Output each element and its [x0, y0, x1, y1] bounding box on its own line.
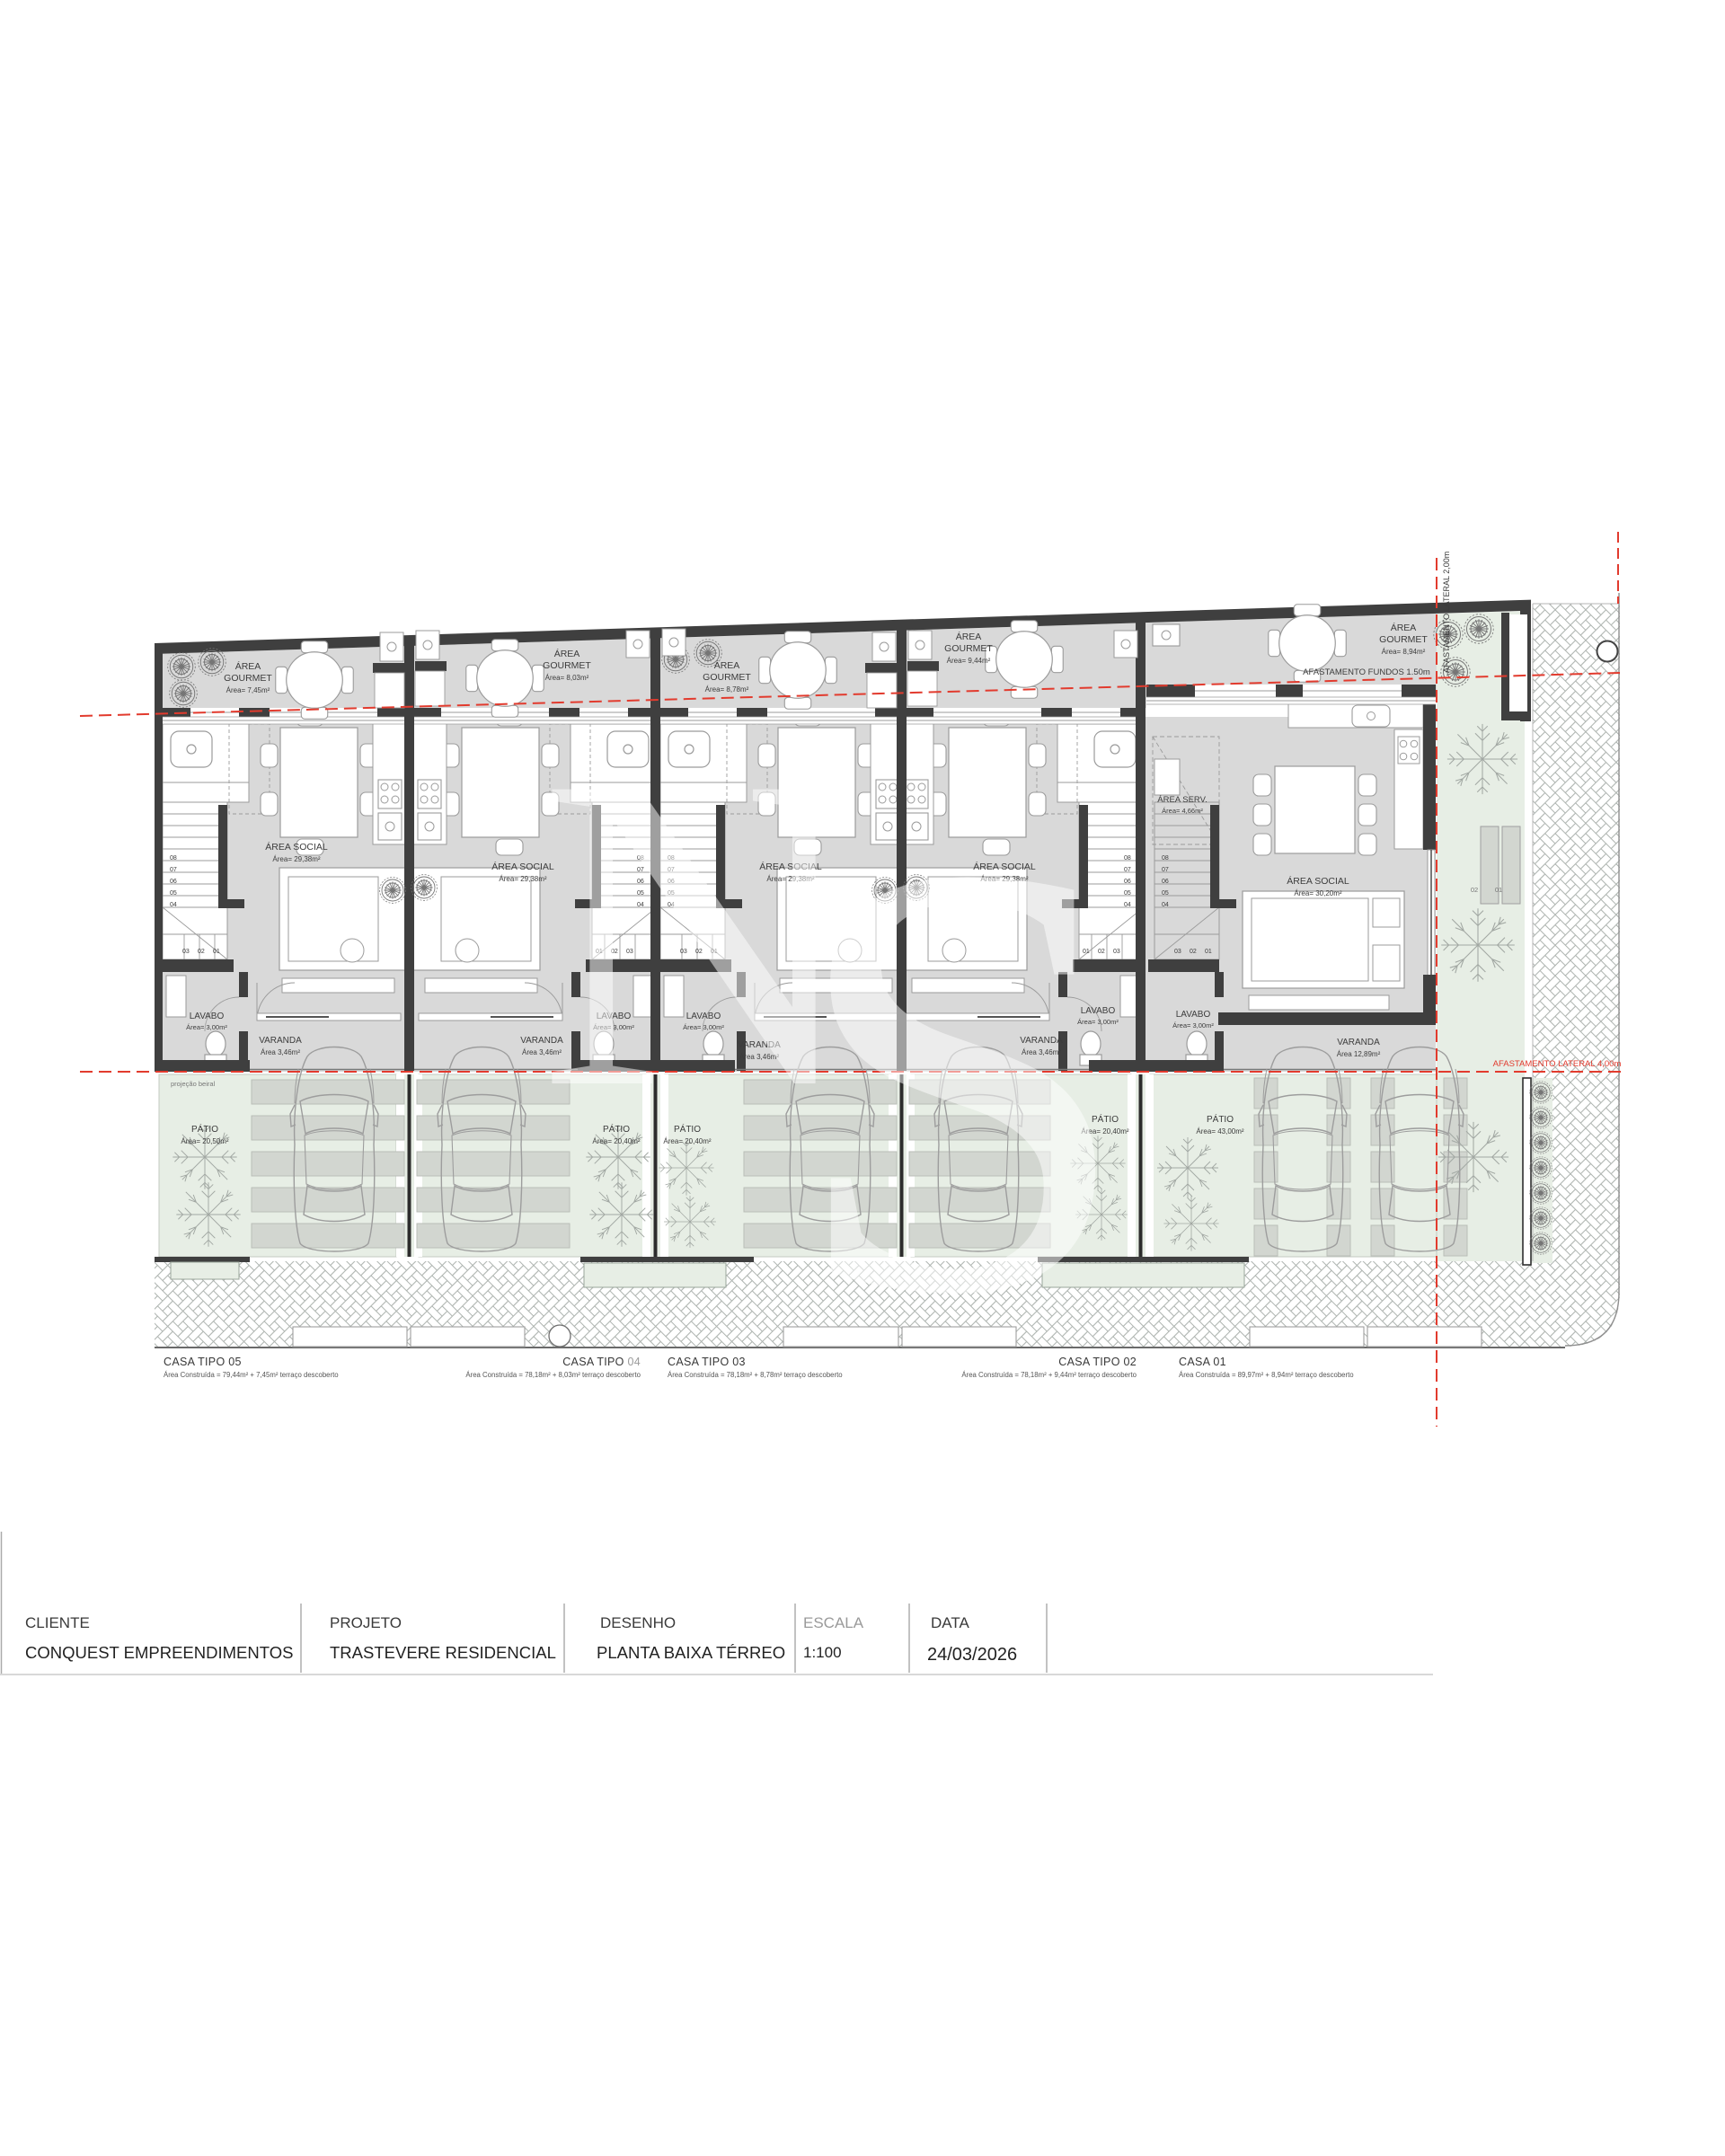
svg-text:04: 04	[170, 902, 177, 908]
svg-text:GOURMET: GOURMET	[224, 673, 272, 684]
svg-text:Área= 8,03m²: Área= 8,03m²	[545, 674, 589, 682]
svg-text:ÁREA SOCIAL: ÁREA SOCIAL	[1287, 875, 1349, 887]
svg-text:CASA TIPO 03: CASA TIPO 03	[668, 1356, 746, 1368]
svg-text:CASA TIPO 05: CASA TIPO 05	[164, 1356, 242, 1368]
svg-text:AFASTAMENTO LATERAL 2,00m: AFASTAMENTO LATERAL 2,00m	[1442, 552, 1451, 673]
svg-text:TRASTEVERE RESIDENCIAL: TRASTEVERE RESIDENCIAL	[330, 1643, 556, 1662]
svg-text:05: 05	[170, 890, 177, 897]
svg-text:projeção beiral: projeção beiral	[171, 1080, 216, 1088]
svg-text:Área 3,46m²: Área 3,46m²	[261, 1048, 300, 1056]
svg-text:Área= 8,94m²: Área= 8,94m²	[1382, 648, 1426, 656]
svg-text:02: 02	[198, 949, 205, 955]
svg-text:DESENHO: DESENHO	[600, 1614, 676, 1631]
svg-text:GOURMET: GOURMET	[703, 672, 751, 683]
svg-text:ÁREA: ÁREA	[714, 659, 740, 671]
svg-text:02: 02	[1471, 886, 1478, 894]
svg-text:06: 06	[170, 879, 177, 885]
svg-text:Área= 30,20m²: Área= 30,20m²	[1294, 889, 1341, 897]
svg-text:PROJETO: PROJETO	[330, 1614, 402, 1631]
svg-text:02: 02	[1190, 949, 1197, 955]
svg-text:Área= 43,00m²: Área= 43,00m²	[1196, 1127, 1243, 1135]
svg-text:08: 08	[1162, 855, 1169, 862]
svg-text:VARANDA: VARANDA	[1337, 1038, 1380, 1047]
svg-text:AFASTAMENTO FUNDOS 1.50m: AFASTAMENTO FUNDOS 1.50m	[1303, 667, 1430, 677]
svg-text:Área= 9,44m²: Área= 9,44m²	[947, 657, 991, 665]
svg-text:Área= 29,38m²: Área= 29,38m²	[272, 855, 320, 863]
svg-text:06: 06	[1162, 879, 1169, 885]
svg-text:ESCALA: ESCALA	[803, 1614, 864, 1631]
svg-text:ÁREA: ÁREA	[1391, 622, 1417, 633]
svg-text:PÁTIO: PÁTIO	[1207, 1113, 1234, 1125]
svg-text:07: 07	[170, 867, 177, 873]
svg-text:Área= 3,00m²: Área= 3,00m²	[1172, 1021, 1214, 1029]
svg-text:ÁREA: ÁREA	[956, 631, 982, 642]
svg-text:LAVABO: LAVABO	[1176, 1010, 1211, 1020]
svg-text:AFASTAMENTO LATERAL 4,00m: AFASTAMENTO LATERAL 4,00m	[1493, 1059, 1622, 1069]
svg-text:CONQUEST EMPREENDIMENTOS: CONQUEST EMPREENDIMENTOS	[25, 1643, 293, 1662]
svg-text:Área 12,89m²: Área 12,89m²	[1337, 1050, 1381, 1058]
svg-text:Área= 3,00m²: Área= 3,00m²	[186, 1023, 227, 1031]
svg-text:CLIENTE: CLIENTE	[25, 1614, 90, 1631]
svg-text:07: 07	[1162, 867, 1169, 873]
svg-text:01: 01	[213, 949, 220, 955]
svg-text:04: 04	[1162, 902, 1169, 908]
svg-text:Área Construída = 78,18m² + 8,: Área Construída = 78,18m² + 8,03m² terra…	[465, 1371, 641, 1379]
svg-text:ÁREA SERV.: ÁREA SERV.	[1157, 795, 1207, 805]
svg-text:ÁREA SOCIAL: ÁREA SOCIAL	[265, 841, 328, 853]
svg-text:S: S	[789, 736, 1134, 1422]
svg-text:Área Construída = 89,97m² + 8,: Área Construída = 89,97m² + 8,94m² terra…	[1179, 1371, 1354, 1379]
svg-text:PÁTIO: PÁTIO	[191, 1123, 218, 1135]
svg-text:GOURMET: GOURMET	[944, 643, 993, 654]
svg-text:Área= 4,66m²: Área= 4,66m²	[1162, 807, 1203, 815]
svg-text:03: 03	[182, 949, 190, 955]
svg-text:ÁREA: ÁREA	[235, 660, 261, 672]
svg-text:PLANTA BAIXA TÉRREO: PLANTA BAIXA TÉRREO	[597, 1643, 785, 1662]
svg-text:CASA 01: CASA 01	[1179, 1356, 1226, 1368]
svg-text:Área Construída = 79,44m² + 7,: Área Construída = 79,44m² + 7,45m² terra…	[164, 1371, 339, 1379]
svg-text:01: 01	[1495, 886, 1502, 894]
svg-text:1:100: 1:100	[803, 1644, 842, 1661]
svg-text:08: 08	[170, 855, 177, 862]
svg-text:DATA: DATA	[931, 1614, 969, 1631]
svg-text:GOURMET: GOURMET	[1379, 634, 1428, 645]
svg-text:LAVABO: LAVABO	[190, 1012, 225, 1021]
svg-text:ÁREA: ÁREA	[554, 648, 580, 659]
svg-text:Área= 7,45m²: Área= 7,45m²	[226, 686, 270, 694]
svg-text:05: 05	[1162, 890, 1169, 897]
svg-text:CASA TIPO 04: CASA TIPO 04	[562, 1356, 641, 1368]
svg-text:VARANDA: VARANDA	[259, 1036, 302, 1046]
svg-text:24/03/2026: 24/03/2026	[927, 1645, 1017, 1665]
svg-text:Área= 20,50m²: Área= 20,50m²	[181, 1137, 228, 1145]
svg-text:03: 03	[1174, 949, 1181, 955]
svg-text:GOURMET: GOURMET	[543, 660, 591, 671]
svg-text:01: 01	[1205, 949, 1212, 955]
